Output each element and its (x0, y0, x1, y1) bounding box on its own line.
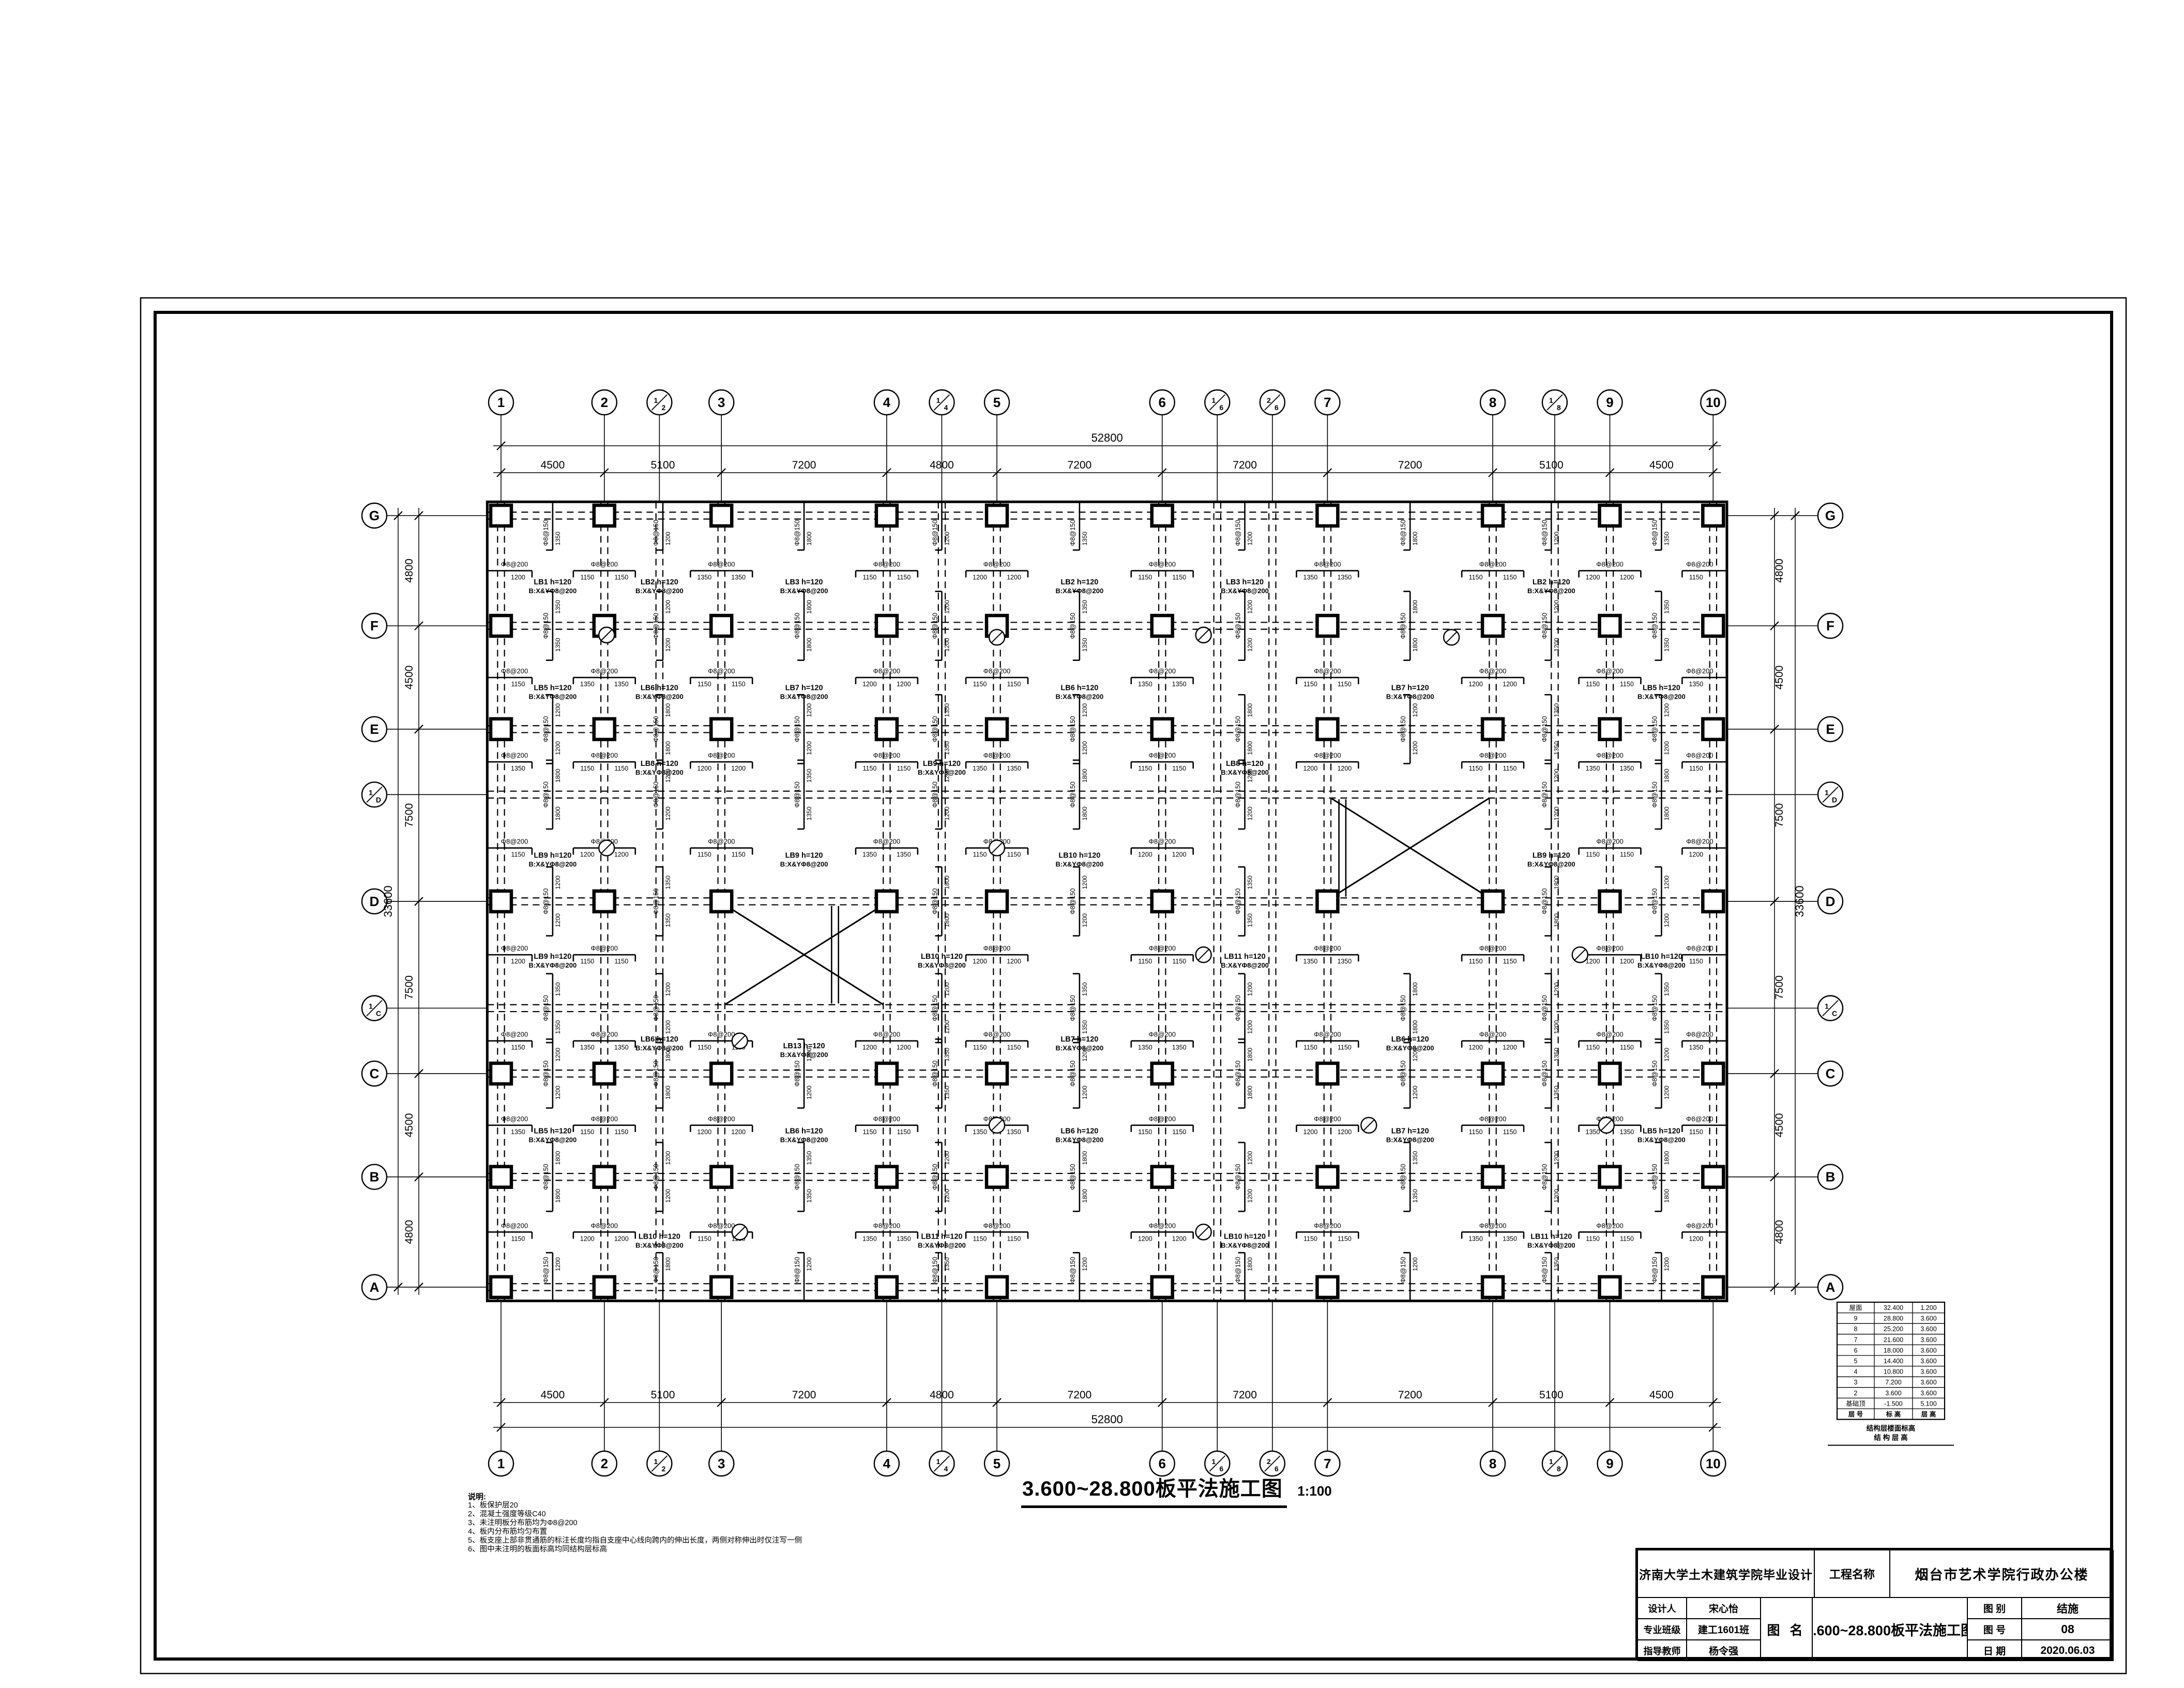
support-bar-length: 1200 (1247, 600, 1254, 614)
support-bar-length: 1350 (862, 1235, 877, 1242)
dim-segment: 7200 (1398, 459, 1422, 471)
support-bar-length: 1150 (511, 851, 525, 858)
support-bar-length: 1800 (1247, 703, 1254, 717)
support-bar-length: 1200 (1689, 851, 1703, 858)
support-bar-length: 1800 (806, 600, 813, 614)
drawing-no-label: 图 号 (1967, 1619, 2022, 1640)
dim-segment: 7200 (792, 459, 816, 471)
support-bar-length: 1150 (1689, 574, 1703, 581)
slab-label-reinforcement: B:X&YΦ8@200 (1221, 587, 1269, 595)
axis-bubble-label: 9 (1606, 395, 1613, 410)
support-bar-length: 1150 (1503, 574, 1517, 581)
support-bar-length: 1200 (806, 1086, 813, 1099)
slab-label-reinforcement: B:X&YΦ8@200 (1056, 861, 1104, 868)
column (1482, 1063, 1503, 1084)
support-bar-label: Φ8@150 (1235, 995, 1242, 1021)
support-bar-label: Φ8@200 (708, 751, 735, 759)
university-name: 济南大学土木建筑学院毕业设计 (1637, 1550, 1814, 1597)
column (1152, 891, 1173, 912)
slab-label: LB6 h=120 (641, 1035, 678, 1044)
support-bar-label: Φ8@150 (1541, 613, 1548, 639)
support-bar-length: 1800 (1247, 1048, 1254, 1062)
floor-table-cell: 21.600 (1884, 1336, 1903, 1344)
advisor-name: 杨令强 (1687, 1640, 1761, 1661)
support-bar-length: 1350 (1303, 958, 1318, 965)
dim-segment: 5100 (1539, 459, 1564, 471)
support-bar-length: 1150 (1469, 574, 1483, 581)
support-bar-label: Φ8@200 (501, 561, 528, 568)
support-bar-length: 1350 (614, 1044, 629, 1051)
floor-table-cell: 层 号 (1848, 1410, 1863, 1418)
support-bar-label: Φ8@200 (1596, 1222, 1624, 1229)
slab-label-reinforcement: B:X&YΦ8@200 (529, 861, 577, 868)
support-bar-length: 1350 (1586, 765, 1600, 772)
column (1600, 1277, 1620, 1298)
support-bar-label: Φ8@150 (1651, 1061, 1658, 1087)
floor-table-cell: 3.600 (1920, 1315, 1936, 1322)
slab-label: LB7 h=120 (785, 684, 823, 692)
floor-table-cell: 4 (1854, 1368, 1858, 1376)
axis-bubble-label: 6 (1158, 1456, 1165, 1471)
support-bar-length: 1150 (1338, 1044, 1352, 1051)
support-bar-length: 1150 (973, 1235, 987, 1242)
axis-bubble-label: A (370, 1279, 380, 1295)
floor-table-cell: 3.600 (1885, 1390, 1901, 1397)
support-bar-label: Φ8@200 (1148, 561, 1176, 568)
support-bar-length: 1200 (1412, 741, 1419, 755)
dim-segment: 5100 (651, 1389, 675, 1401)
support-bar-length: 1200 (1081, 741, 1088, 755)
support-bar-label: Φ8@150 (1651, 781, 1658, 808)
support-bar-length: 1350 (1081, 532, 1088, 546)
support-bar-length: 1200 (943, 982, 950, 996)
column (1600, 505, 1620, 526)
column (711, 891, 732, 912)
support-bar-label: Φ8@200 (501, 944, 528, 952)
support-bar-label: Φ8@200 (1686, 751, 1713, 759)
support-bar-length: 1200 (943, 1189, 950, 1203)
slab-label: LB10 h=120 (1224, 1233, 1266, 1241)
support-bar-length: 1200 (1081, 703, 1088, 717)
support-bar-length: 1200 (580, 1235, 595, 1242)
slab-label-reinforcement: B:X&YΦ8@200 (635, 692, 684, 700)
support-bar-length: 1200 (1247, 1020, 1254, 1034)
support-bar-label: Φ8@200 (1314, 751, 1341, 759)
floor-table-cell: 8 (1854, 1325, 1858, 1333)
column (491, 1167, 511, 1187)
support-bar-length: 1200 (1663, 1048, 1670, 1062)
support-bar-label: Φ8@150 (653, 716, 660, 743)
slab-label: LB10 h=120 (1058, 852, 1100, 860)
slab-label: LB1 h=120 (534, 578, 571, 586)
column (876, 505, 897, 526)
support-bar-length: 1350 (1081, 638, 1088, 652)
support-bar-length: 1200 (554, 1048, 562, 1062)
support-bar-length: 1800 (664, 1257, 672, 1271)
slab-label: LB11 h=120 (1530, 1233, 1572, 1241)
title-block: 济南大学土木建筑学院毕业设计 工程名称 烟台市艺术学院行政办公楼 设计人 宋心怡… (1635, 1548, 2112, 1659)
axis-bubble-label: 1 (1549, 396, 1553, 404)
column (711, 1277, 732, 1298)
support-bar-length: 1200 (731, 1128, 746, 1136)
support-bar-length: 1150 (1503, 958, 1517, 965)
drawing-sheet: { "frame": {"outer":[272,576,3840,2660],… (0, 0, 2184, 1688)
support-bar-length: 1200 (1663, 1086, 1670, 1099)
slab-label: LB2 h=120 (1533, 578, 1570, 586)
axis-bubble-label: C (370, 1066, 380, 1081)
support-bar-length: 1800 (1412, 1020, 1419, 1034)
column (876, 719, 897, 740)
support-bar-label: Φ8@200 (1148, 944, 1176, 952)
support-bar-length: 1200 (511, 958, 525, 965)
support-bar-length: 1150 (580, 574, 594, 581)
support-bar-length: 1200 (1689, 1235, 1703, 1242)
support-bar-length: 1200 (943, 532, 950, 546)
column (1703, 1063, 1723, 1084)
axis-bubble-label: F (1826, 618, 1834, 634)
support-bar-label: Φ8@200 (1314, 667, 1341, 675)
support-bar-length: 1800 (806, 638, 813, 652)
support-bar-label: Φ8@200 (1314, 1115, 1341, 1123)
support-bar-label: Φ8@150 (1069, 716, 1076, 743)
support-bar-label: Φ8@200 (501, 1115, 528, 1123)
support-bar-label: Φ8@200 (983, 944, 1011, 952)
column (491, 1063, 511, 1084)
support-bar-label: Φ8@150 (542, 613, 550, 639)
drawing-name: 3.600~28.800板平法施工图 (1812, 1597, 1967, 1661)
support-bar-length: 1800 (806, 532, 813, 546)
dim-segment: 4500 (1773, 666, 1785, 690)
support-bar-label: Φ8@150 (1400, 1257, 1407, 1283)
column (987, 505, 1007, 526)
axis-bubble-label: 3 (718, 395, 725, 410)
support-bar-length: 1800 (1247, 741, 1254, 755)
note-line: 1、板保护层20 (468, 1501, 892, 1510)
support-bar-length: 1200 (1138, 1235, 1152, 1242)
support-bar-label: Φ8@150 (931, 613, 938, 639)
support-bar-label: Φ8@150 (794, 613, 801, 639)
support-bar-length: 1800 (1412, 982, 1419, 996)
column (876, 1167, 897, 1187)
axis-bubble-label: 10 (1706, 395, 1721, 410)
floor-table-cell: 层 高 (1921, 1410, 1936, 1418)
support-bar-label: Φ8@200 (591, 1031, 618, 1038)
axis-bubble-label: 8 (1557, 403, 1561, 412)
support-bar-length: 1350 (697, 574, 711, 581)
column (876, 615, 897, 636)
support-bar-label: Φ8@150 (794, 1257, 801, 1283)
support-bar-length: 1800 (1553, 913, 1560, 927)
support-bar-length: 1200 (1247, 982, 1254, 996)
support-bar-length: 1150 (1338, 1235, 1352, 1242)
support-bar-label: Φ8@150 (1541, 1061, 1548, 1087)
support-bar-length: 1200 (511, 574, 525, 581)
slab-label-reinforcement: B:X&YΦ8@200 (1386, 1044, 1434, 1052)
support-bar-length: 1200 (1620, 574, 1634, 581)
support-bar-length: 1200 (1663, 876, 1670, 890)
support-bar-label: Φ8@200 (1686, 944, 1713, 952)
support-bar-label: Φ8@200 (1479, 1031, 1507, 1038)
slab-label-reinforcement: B:X&YΦ8@200 (1221, 768, 1269, 776)
support-bar-length: 1350 (1663, 982, 1670, 996)
axis-bubble-label: 1 (1549, 1457, 1553, 1466)
column (594, 505, 615, 526)
support-bar-length: 1200 (664, 532, 672, 546)
support-bar-length: 1150 (580, 1128, 594, 1136)
support-bar-length: 1150 (973, 851, 987, 858)
support-bar-label: Φ8@150 (1069, 995, 1076, 1021)
support-bar-label: Φ8@200 (591, 1222, 618, 1229)
support-bar-length: 1200 (862, 1044, 877, 1051)
support-bar-label: Φ8@200 (1596, 561, 1624, 568)
support-bar-length: 1200 (1553, 638, 1560, 652)
support-bar-label: Φ8@150 (653, 1061, 660, 1087)
slab-label: LB10 h=120 (639, 1233, 680, 1241)
dim-segment: 4500 (541, 1389, 565, 1401)
column (711, 615, 732, 636)
plan-scale: 1:100 (1297, 1483, 1332, 1499)
column (711, 505, 732, 526)
support-bar-length: 1350 (973, 765, 987, 772)
support-bar-length: 1200 (614, 1235, 629, 1242)
slab-label-reinforcement: B:X&YΦ8@200 (1637, 961, 1686, 969)
slab-label: LB7 h=120 (1391, 1127, 1429, 1135)
support-bar-length: 1350 (1620, 1128, 1634, 1136)
axis-bubble-label: D (1832, 795, 1837, 804)
slab-label-reinforcement: B:X&YΦ8@200 (1056, 1044, 1104, 1052)
advisor-label: 指导教师 (1637, 1640, 1687, 1661)
axis-bubble-label: 6 (1219, 403, 1223, 412)
support-bar-label: Φ8@150 (1235, 613, 1242, 639)
support-bar-length: 1350 (806, 806, 813, 820)
support-bar-length: 1350 (1081, 600, 1088, 614)
axis-bubble-label: 2 (661, 403, 665, 412)
support-bar-length: 1200 (1412, 1257, 1419, 1271)
support-bar-length: 1200 (1553, 982, 1560, 996)
support-bar-label: Φ8@150 (1541, 888, 1548, 915)
column (1600, 719, 1620, 740)
column (711, 1167, 732, 1187)
support-bar-label: Φ8@200 (708, 1031, 735, 1038)
support-bar-length: 1800 (664, 741, 672, 755)
support-bar-length: 1150 (614, 958, 628, 965)
support-bar-length: 1200 (554, 1257, 562, 1271)
support-bar-length: 1800 (1663, 1151, 1670, 1165)
column (1482, 719, 1503, 740)
column (1317, 615, 1338, 636)
support-bar-length: 1350 (1247, 913, 1254, 927)
slab-label-reinforcement: B:X&YΦ8@200 (1056, 692, 1104, 700)
support-bar-length: 1200 (697, 1128, 711, 1136)
support-bar-length: 1150 (614, 765, 628, 772)
column (491, 719, 511, 740)
support-bar-length: 1200 (1553, 1020, 1560, 1034)
column (1703, 505, 1723, 526)
slab-label-reinforcement: B:X&YΦ8@200 (635, 768, 684, 776)
support-bar-label: Φ8@200 (1686, 1222, 1713, 1229)
support-bar-label: Φ8@150 (542, 520, 550, 546)
support-bar-length: 1150 (511, 1044, 525, 1051)
support-bar-length: 1150 (1303, 1044, 1317, 1051)
support-bar-label: Φ8@150 (1400, 1061, 1407, 1087)
axis-bubble-label: 1 (497, 1456, 505, 1471)
support-bar-label: Φ8@150 (1069, 888, 1076, 915)
support-bar-length: 1200 (943, 1151, 950, 1165)
slab-label-reinforcement: B:X&YΦ8@200 (1056, 1136, 1104, 1143)
support-bar-label: Φ8@150 (931, 1257, 938, 1283)
support-bar-length: 1350 (1689, 1044, 1703, 1051)
support-bar-label: Φ8@150 (1235, 1164, 1242, 1190)
support-bar-label: Φ8@150 (1541, 1164, 1548, 1190)
drawing-no: 08 (2022, 1619, 2114, 1640)
slab-label: LB5 h=120 (534, 1127, 571, 1135)
support-bar-length: 1350 (806, 768, 813, 782)
support-bar-label: Φ8@200 (1479, 944, 1507, 952)
support-bar-length: 1150 (1138, 574, 1152, 581)
support-bar-label: Φ8@200 (983, 561, 1011, 568)
floor-table-footer: 结构层楼面标高 (1867, 1424, 1916, 1433)
support-bar-length: 1800 (1412, 638, 1419, 652)
axis-bubble-label: 2 (1267, 396, 1271, 404)
support-bar-label: Φ8@150 (542, 1061, 550, 1087)
support-bar-length: 1350 (943, 1048, 950, 1062)
slab-label-reinforcement: B:X&YΦ8@200 (1527, 587, 1575, 595)
date-value: 2020.06.03 (2022, 1640, 2114, 1661)
support-bar-length: 1150 (732, 851, 746, 858)
support-bar-label: Φ8@200 (1314, 1222, 1341, 1229)
dim-segment: 7200 (792, 1389, 816, 1401)
support-bar-length: 1350 (731, 574, 746, 581)
support-bar-label: Φ8@150 (931, 781, 938, 808)
support-bar-length: 1150 (1138, 958, 1152, 965)
support-bar-label: Φ8@200 (1596, 838, 1624, 846)
axis-bubble-label: B (370, 1169, 380, 1185)
support-bar-label: Φ8@150 (1400, 995, 1407, 1021)
support-bar-length: 1200 (554, 703, 562, 717)
dim-segment: 4500 (541, 459, 565, 471)
support-bar-length: 1200 (1503, 681, 1517, 688)
support-bar-length: 1150 (1469, 1128, 1483, 1136)
slab-label-reinforcement: B:X&YΦ8@200 (1386, 692, 1434, 700)
support-bar-length: 1350 (897, 1235, 911, 1242)
column (1600, 1063, 1620, 1084)
support-bar-label: Φ8@150 (1651, 888, 1658, 915)
floor-table-cell: 3.600 (1920, 1368, 1936, 1376)
support-bar-label: Φ8@200 (501, 1222, 528, 1229)
support-bar-label: Φ8@200 (1148, 838, 1176, 846)
support-bar-label: Φ8@150 (1235, 1257, 1242, 1283)
support-bar-label: Φ8@150 (1651, 1164, 1658, 1190)
column (1703, 1167, 1723, 1187)
support-bar-length: 1200 (897, 1044, 911, 1051)
support-bar-length: 1800 (664, 1086, 672, 1099)
note-line: 4、板内分布筋均匀布置 (468, 1528, 892, 1536)
support-bar-label: Φ8@150 (1069, 781, 1076, 808)
support-bar-length: 1350 (943, 703, 950, 717)
support-bar-label: Φ8@150 (1400, 1164, 1407, 1190)
support-bar-length: 1200 (1172, 1235, 1187, 1242)
support-bar-length: 1150 (1007, 851, 1021, 858)
slab-label: LB6 h=120 (1391, 1035, 1429, 1044)
support-bar-label: Φ8@200 (1686, 838, 1713, 846)
support-bar-length: 1350 (1007, 765, 1021, 772)
support-bar-label: Φ8@150 (653, 520, 660, 546)
support-bar-length: 1800 (1663, 768, 1670, 782)
column (1482, 615, 1503, 636)
support-bar-length: 1200 (806, 703, 813, 717)
support-bar-length: 1200 (1586, 574, 1600, 581)
support-bar-length: 1350 (1172, 681, 1187, 688)
floor-table-cell: 18.000 (1884, 1347, 1903, 1354)
support-bar-length: 1350 (973, 1128, 987, 1136)
floor-table-cell: 6 (1854, 1347, 1858, 1354)
axis-bubble-label: 1 (1825, 1002, 1829, 1010)
support-bar-length: 1800 (554, 768, 562, 782)
support-bar-label: Φ8@150 (931, 888, 938, 915)
dim-segment: 4800 (930, 459, 954, 471)
support-bar-length: 1150 (580, 765, 594, 772)
support-bar-length: 1200 (1553, 532, 1560, 546)
support-bar-length: 1150 (1303, 1235, 1317, 1242)
support-bar-label: Φ8@150 (1069, 520, 1076, 546)
column (1482, 1167, 1503, 1187)
support-bar-length: 1350 (664, 876, 672, 890)
slab-label-reinforcement: B:X&YΦ8@200 (1221, 961, 1269, 969)
floor-table-cell: 3.600 (1920, 1347, 1936, 1354)
support-bar-length: 1150 (1172, 958, 1186, 965)
support-bar-label: Φ8@150 (931, 1164, 938, 1190)
floor-table-cell: 1.200 (1920, 1304, 1936, 1312)
slab-label: LB8 h=120 (641, 760, 678, 768)
slab-label: LB2 h=120 (1060, 578, 1098, 586)
support-bar-length: 1200 (1247, 1151, 1254, 1165)
class-label: 专业班级 (1637, 1619, 1687, 1640)
designer-name: 宋心怡 (1687, 1597, 1761, 1619)
column (1317, 505, 1338, 526)
support-bar-length: 1800 (1412, 532, 1419, 546)
support-bar-label: Φ8@200 (708, 1222, 735, 1229)
slab-label-reinforcement: B:X&YΦ8@200 (1637, 1136, 1686, 1143)
support-bar-length: 1200 (1081, 913, 1088, 927)
support-bar-label: Φ8@150 (542, 888, 550, 915)
support-bar-label: Φ8@200 (873, 667, 901, 675)
dim-total: 52800 (1091, 1413, 1123, 1426)
support-bar-length: 1200 (664, 1189, 672, 1203)
support-bar-length: 1150 (1007, 681, 1021, 688)
slab-label: LB5 h=120 (1643, 1127, 1680, 1135)
drawing-name-label: 图 名 (1761, 1597, 1812, 1661)
support-bar-length: 1350 (1663, 1020, 1670, 1034)
support-bar-label: Φ8@150 (1235, 781, 1242, 808)
dim-total: 52800 (1091, 431, 1123, 444)
column (1317, 1167, 1338, 1187)
support-bar-length: 1350 (862, 851, 877, 858)
support-bar-length: 1150 (1689, 958, 1703, 965)
axis-bubble-label: 1 (936, 1457, 941, 1466)
project-name-label: 工程名称 (1814, 1550, 1890, 1597)
support-bar-length: 1800 (1412, 600, 1419, 614)
column (1600, 615, 1620, 636)
column (594, 1167, 615, 1187)
support-bar-length: 1350 (1247, 876, 1254, 890)
axis-bubble-label: 8 (1489, 1456, 1496, 1471)
support-bar-length: 1150 (1172, 574, 1186, 581)
slab-label: LB6 h=120 (1060, 1127, 1098, 1135)
support-bar-label: Φ8@150 (1235, 1061, 1242, 1087)
support-bar-label: Φ8@200 (1314, 561, 1341, 568)
support-bar-length: 1350 (580, 681, 595, 688)
support-bar-length: 1200 (973, 574, 987, 581)
